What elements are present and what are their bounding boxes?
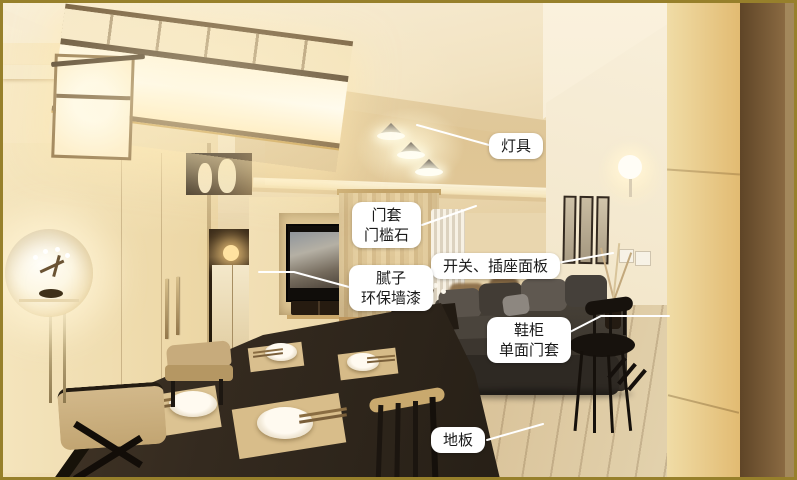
tv-screen [290, 232, 344, 288]
entry-rack [615, 355, 655, 391]
media-slot-divider [318, 301, 320, 315]
annotation-floor: 地板 [431, 427, 485, 453]
dining-chair [163, 339, 237, 409]
chair-leg [171, 381, 175, 407]
side-chair-leg [574, 351, 584, 431]
vase [218, 159, 236, 193]
annotation-lighting: 灯具 [489, 133, 543, 159]
side-chair-leg [593, 355, 596, 433]
bonsai-pot [39, 289, 63, 298]
door-frame [785, 3, 794, 477]
wall-art-panel [562, 196, 577, 264]
bonsai-flower [43, 249, 48, 254]
dining-chair [57, 381, 169, 477]
chair-slat [413, 401, 418, 477]
chair-slat [376, 405, 384, 477]
annotation-text: 灯具 [501, 136, 531, 156]
annotation-text: 开关、插座面板 [443, 256, 548, 276]
cone-light-beam [397, 151, 425, 159]
cabinet-seam [668, 394, 739, 414]
annotation-door-casing: 门套 门槛石 [352, 202, 421, 248]
pendant-lamp-end-face [51, 54, 135, 161]
side-chair-seat [569, 333, 635, 357]
annotation-text: 单面门套 [499, 340, 559, 360]
wardrobe-handle [176, 277, 179, 335]
bonsai-flower [65, 253, 70, 258]
chair-slat [394, 403, 400, 477]
side-chair-spindle [609, 307, 612, 335]
bonsai-branch [40, 260, 65, 274]
entry-cabinet-face [667, 3, 740, 477]
side-chair-spindle [593, 309, 596, 335]
orchid-flower [441, 289, 446, 294]
chair-back [57, 381, 167, 450]
floor-lamp-leg [49, 309, 52, 403]
annotation-text: 门套 [364, 205, 409, 225]
lamp-end-bar [56, 94, 130, 101]
orchid-flower [433, 283, 438, 288]
annotation-text: 地板 [443, 430, 473, 450]
room-photo: 灯具 门套 门槛石 开关、插座面板 腻子 环保墙漆 鞋柜 单面门套 地板 [3, 3, 794, 477]
annotation-text: 门槛石 [364, 225, 409, 245]
annotation-text: 腻子 [361, 268, 421, 288]
annotation-switch-socket-panel: 开关、插座面板 [431, 253, 560, 279]
cabinet-seam [667, 168, 740, 175]
entry-cabinet-side [740, 3, 785, 477]
wall-sconce-stem [629, 179, 632, 197]
side-chair-spindle [623, 307, 626, 335]
chair-leg [219, 379, 223, 405]
floor-lamp-leg [63, 309, 66, 403]
cone-light-beam [377, 132, 405, 140]
paper-floor-lamp [5, 229, 93, 317]
side-chair-leg [607, 355, 614, 433]
vase [198, 163, 212, 193]
plate [257, 407, 313, 439]
annotation-shoe-cabinet: 鞋柜 单面门套 [487, 317, 571, 363]
annotation-text: 鞋柜 [499, 320, 559, 340]
alcove-lamp [223, 245, 239, 261]
annotated-interior-photo: 灯具 门套 门槛石 开关、插座面板 腻子 环保墙漆 鞋柜 单面门套 地板 [0, 0, 797, 480]
cone-light-beam [415, 168, 443, 176]
bonsai-flower [33, 255, 38, 260]
annotation-putty-eco-paint: 腻子 环保墙漆 [349, 265, 433, 311]
annotation-text: 环保墙漆 [361, 288, 421, 308]
lamp-shelf [19, 299, 79, 302]
wardrobe-handle [165, 279, 168, 339]
bonsai-flower [55, 247, 60, 252]
wall-sconce [618, 155, 642, 179]
sofa-pillow [502, 293, 531, 316]
